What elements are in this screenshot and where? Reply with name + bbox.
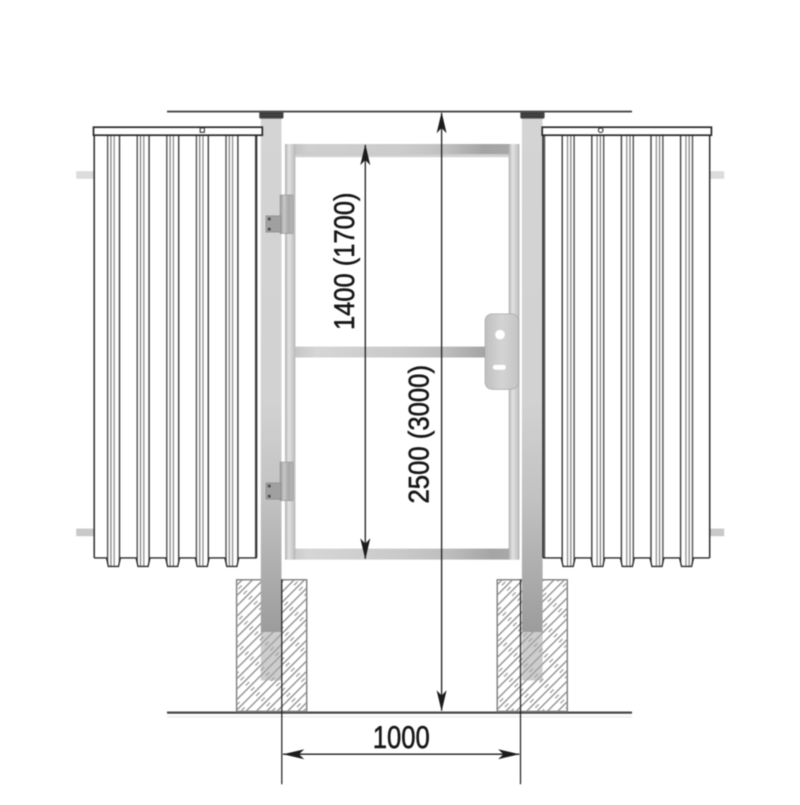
svg-text:1000: 1000 bbox=[373, 719, 430, 755]
svg-text:2500 (3000): 2500 (3000) bbox=[403, 365, 435, 504]
svg-text:1400 (1700): 1400 (1700) bbox=[329, 193, 361, 331]
